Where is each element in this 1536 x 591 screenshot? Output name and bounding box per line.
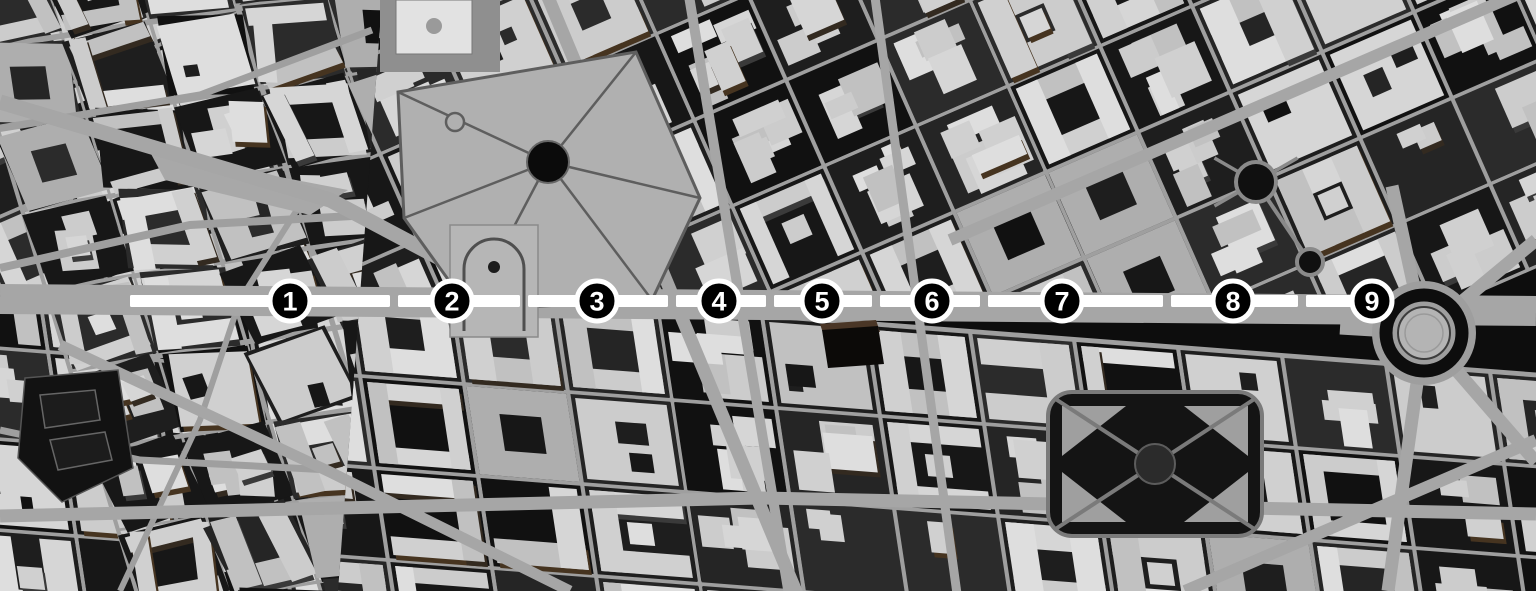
marker-number: 8	[1225, 287, 1240, 317]
route-marker-6[interactable]: 6	[912, 281, 952, 321]
route-markers: 123456789	[270, 281, 1392, 321]
route-marker-3[interactable]: 3	[577, 281, 617, 321]
marker-number: 5	[814, 287, 829, 317]
park-pond	[527, 141, 569, 183]
route-segment	[130, 295, 390, 307]
palace-dome	[426, 18, 442, 34]
plaza-circle	[1297, 249, 1323, 275]
city-map: 123456789	[0, 0, 1536, 591]
marker-number: 6	[924, 287, 939, 317]
marker-number: 3	[589, 287, 604, 317]
route-marker-7[interactable]: 7	[1042, 281, 1082, 321]
marker-number: 1	[282, 287, 297, 317]
route-marker-1[interactable]: 1	[270, 281, 310, 321]
map-canvas: 123456789	[0, 0, 1536, 591]
route-marker-2[interactable]: 2	[432, 281, 472, 321]
parterre-pond	[1135, 444, 1175, 484]
marker-number: 9	[1364, 287, 1379, 317]
marker-number: 4	[711, 287, 726, 317]
marker-number: 2	[444, 287, 459, 317]
route-marker-8[interactable]: 8	[1213, 281, 1253, 321]
marker-number: 7	[1054, 287, 1069, 317]
route-marker-5[interactable]: 5	[802, 281, 842, 321]
roundabout-island	[1398, 307, 1450, 359]
route-line	[130, 295, 1373, 307]
plaza-circle	[1236, 162, 1276, 202]
route-marker-4[interactable]: 4	[699, 281, 739, 321]
route-marker-9[interactable]: 9	[1352, 281, 1392, 321]
